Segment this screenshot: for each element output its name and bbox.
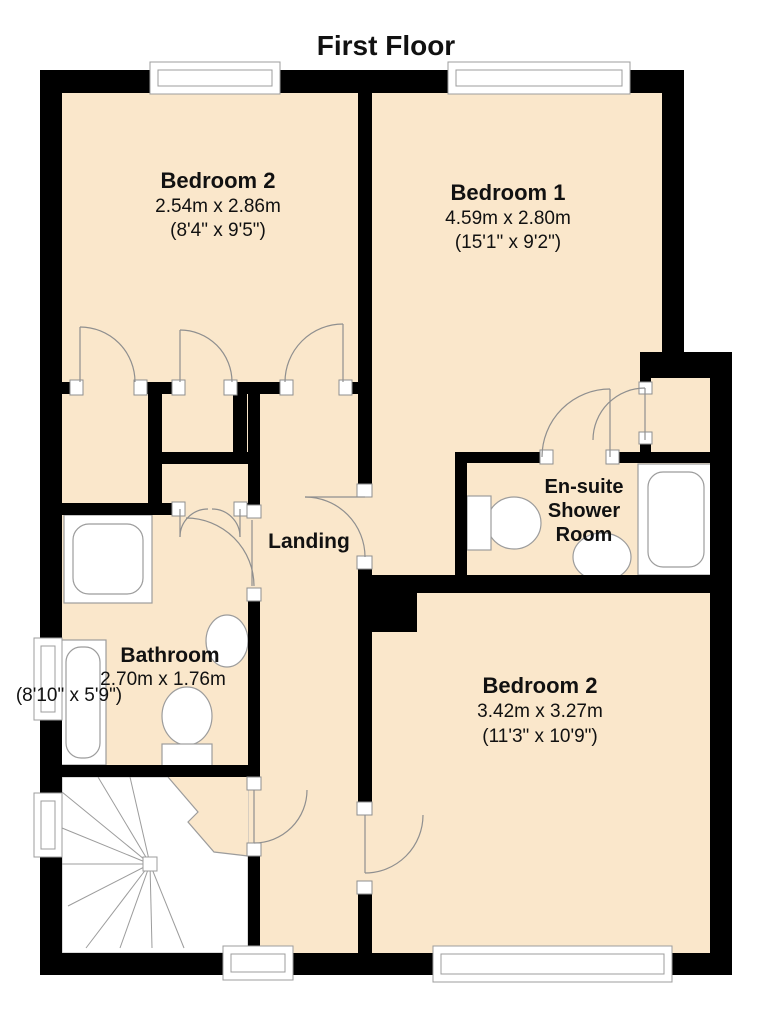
wall-segment	[233, 392, 247, 452]
wall-segment	[248, 843, 260, 953]
wall-segment	[455, 452, 467, 575]
window	[34, 638, 62, 720]
room-name: Bedroom 1	[451, 180, 566, 205]
window	[448, 62, 630, 94]
label-landing: Landing	[268, 530, 350, 553]
label-bedroom2-bottom: Bedroom 2 3.42m x 3.27m (11'3" x 10'9")	[477, 673, 603, 747]
room-name: En-suite	[545, 476, 624, 498]
door-jamb	[606, 450, 619, 464]
wall-segment	[358, 593, 372, 815]
room-name: Room	[556, 524, 613, 546]
room-name: Bedroom 2	[483, 673, 598, 698]
shower-tray	[648, 472, 704, 567]
label-ensuite: En-suite Shower Room	[545, 476, 624, 546]
door-jamb	[247, 588, 261, 601]
room-name: Shower	[548, 500, 620, 522]
wall-segment	[662, 70, 684, 370]
wall-segment	[710, 352, 732, 975]
wall-segment	[162, 452, 250, 464]
wall-segment	[455, 452, 550, 463]
door-jamb	[224, 380, 237, 395]
door-jamb	[247, 505, 261, 518]
room-name: Landing	[268, 530, 350, 553]
page-title: First Floor	[317, 30, 456, 61]
door-jamb	[172, 380, 185, 395]
floorplan-drawing: First Floor Bedroom 2 2.54m x 2.86m (8'4…	[0, 0, 773, 1024]
floorplan-page: First Floor Bedroom 2 2.54m x 2.86m (8'4…	[0, 0, 773, 1024]
staircase	[62, 777, 248, 953]
toilet-cistern	[467, 496, 491, 550]
wall-segment	[62, 503, 162, 515]
label-bedroom2-top: Bedroom 2 2.54m x 2.86m (8'4" x 9'5")	[155, 168, 281, 241]
door-jamb	[357, 881, 372, 894]
wall-segment	[358, 93, 372, 385]
door-jamb	[247, 843, 261, 856]
door-jamb	[134, 380, 147, 395]
wall-segment	[358, 385, 372, 496]
wall-segment	[372, 575, 712, 593]
door-jamb	[357, 484, 372, 497]
room-name: Bathroom	[120, 644, 219, 667]
window	[433, 946, 672, 982]
toilet-bowl	[162, 687, 212, 745]
wall-segment	[148, 392, 162, 503]
stair-newel	[143, 857, 157, 871]
door-jamb	[280, 380, 293, 395]
door-jamb	[339, 380, 352, 395]
room-dim-imperial: (8'4" x 9'5")	[170, 220, 266, 241]
door-jamb	[247, 777, 261, 790]
room-dim-imperial: (15'1" x 9'2")	[455, 232, 561, 253]
room-dim-metric: 4.59m x 2.80m	[445, 208, 571, 229]
door-jamb	[172, 502, 185, 516]
door-jamb	[357, 802, 372, 815]
room-dim-metric: 3.42m x 3.27m	[477, 701, 603, 722]
door-jamb	[357, 556, 372, 569]
wall-segment	[610, 452, 712, 463]
toilet-bowl	[487, 497, 541, 549]
label-bedroom1: Bedroom 1 4.59m x 2.80m (15'1" x 9'2")	[445, 180, 571, 253]
window	[34, 793, 62, 857]
wall-segment	[62, 765, 260, 777]
room-dim-metric: 2.54m x 2.86m	[155, 196, 281, 217]
window	[223, 946, 293, 980]
room-name: Bedroom 2	[161, 168, 276, 193]
exterior-patch	[684, 58, 746, 354]
window	[150, 62, 280, 94]
shower-tray	[73, 524, 143, 594]
wall-segment	[248, 392, 260, 518]
room-dim-imperial: (8'10" x 5'9")	[16, 685, 122, 706]
room-dim-imperial: (11'3" x 10'9")	[482, 726, 597, 747]
door-jamb	[70, 380, 83, 395]
wall-segment	[248, 588, 260, 765]
